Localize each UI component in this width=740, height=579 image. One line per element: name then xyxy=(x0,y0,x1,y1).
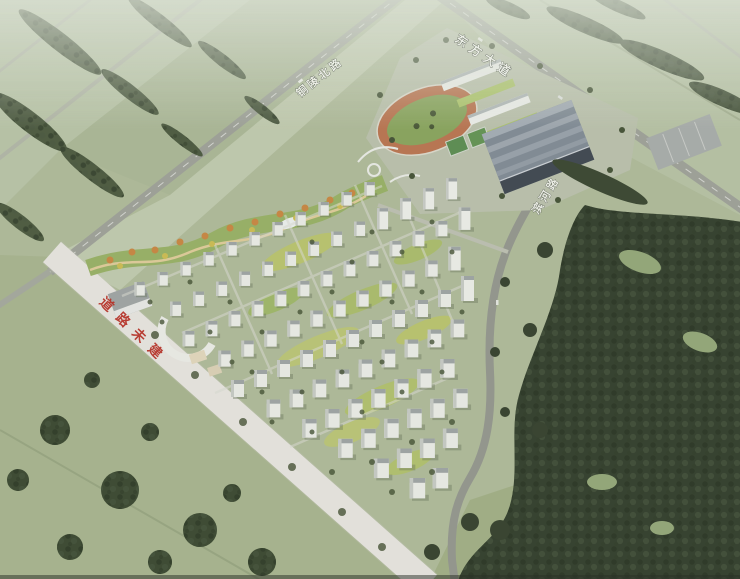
bottom-edge xyxy=(0,575,740,579)
rendering-canvas: 铜陵北路 东方大道 滨河路 道路未建 xyxy=(0,0,740,579)
tone-overlay xyxy=(0,0,740,579)
aerial-masterplan-rendering: 铜陵北路 东方大道 滨河路 道路未建 xyxy=(0,0,740,579)
